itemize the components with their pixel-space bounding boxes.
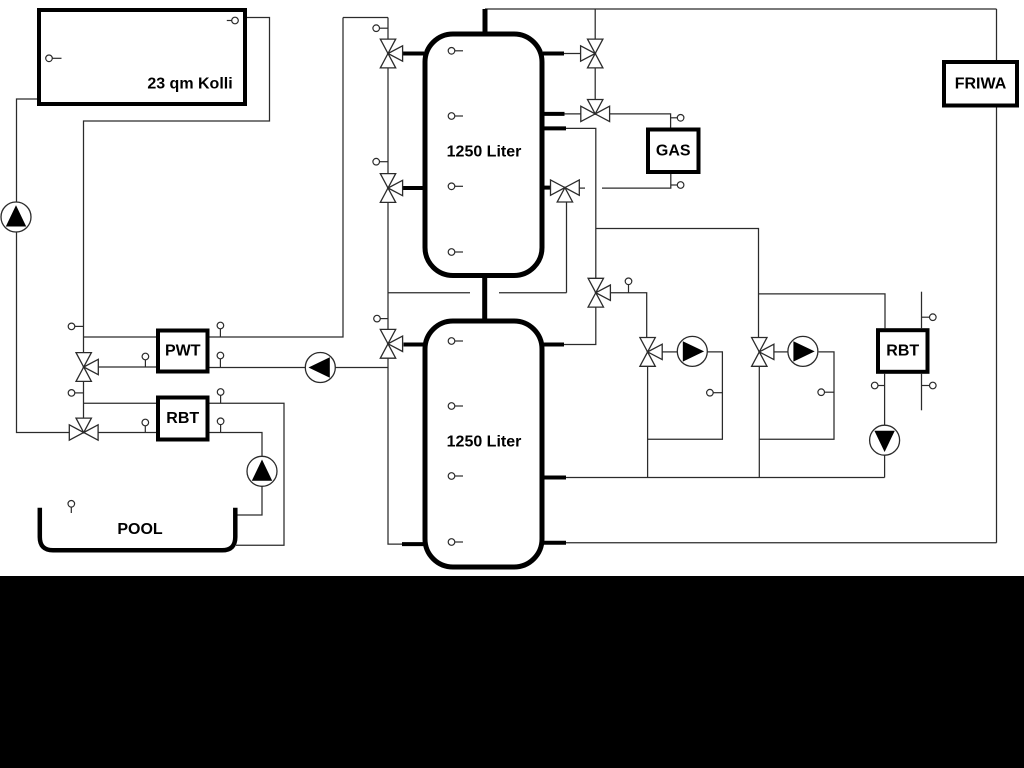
- svg-text:RBT: RBT: [886, 343, 919, 360]
- svg-text:23 qm Kolli: 23 qm Kolli: [147, 76, 232, 93]
- svg-text:GAS: GAS: [656, 142, 691, 159]
- svg-text:PWT: PWT: [165, 343, 201, 360]
- svg-text:RBT: RBT: [166, 410, 199, 427]
- svg-text:1250 Liter: 1250 Liter: [447, 434, 522, 451]
- svg-text:FRIWA: FRIWA: [955, 75, 1007, 92]
- svg-text:1250 Liter: 1250 Liter: [447, 144, 522, 161]
- svg-text:POOL: POOL: [117, 521, 163, 538]
